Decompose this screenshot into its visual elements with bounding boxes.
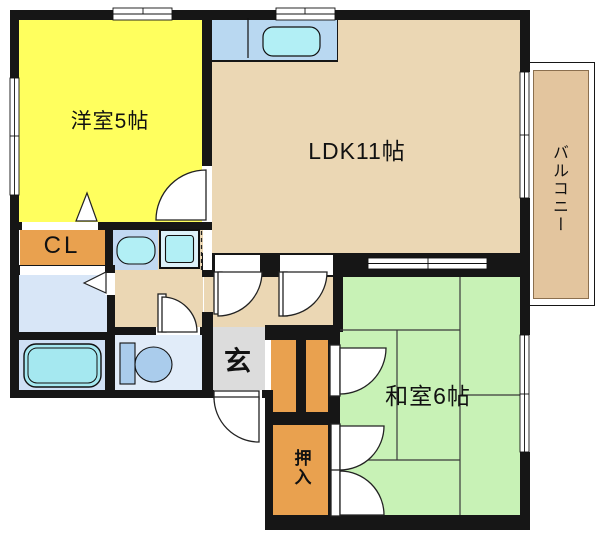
wall-washroom-bath	[10, 332, 107, 340]
opening-hall-left	[215, 255, 260, 275]
shoe-closet-left	[271, 338, 296, 412]
wall-right-top	[520, 10, 530, 72]
room-bathroom	[18, 340, 107, 390]
room-toilet	[115, 335, 203, 390]
opening-hall-right	[280, 255, 333, 275]
opening-cl	[22, 222, 98, 230]
label-balcony: バルコニー	[546, 144, 570, 234]
opening-entry	[214, 390, 262, 398]
wall-top	[10, 10, 530, 20]
label-ldk: LDK11帖	[308, 132, 406, 166]
room-washroom	[18, 275, 107, 332]
label-oshiire: 押入	[289, 449, 314, 487]
kitchen-counter	[212, 18, 338, 62]
wall-japanese-left	[328, 332, 340, 525]
shoe-closet-right	[306, 338, 329, 412]
floor-plan: 洋室5帖 LDK11帖 和室6帖 CL 玄 押入 バルコニー	[0, 0, 600, 535]
washbasin-unit	[111, 228, 158, 270]
label-genkan: 玄	[224, 340, 252, 379]
label-cl: CL	[44, 232, 81, 260]
wall-western-ldk	[202, 10, 212, 168]
opening-washroom	[20, 266, 105, 275]
door-entry-icon	[214, 397, 259, 442]
label-japanese-room: 和室6帖	[385, 377, 471, 411]
wall-bottom	[265, 515, 530, 530]
wall-cl-basin	[105, 222, 113, 275]
opening-washroom-door	[105, 273, 115, 295]
opening-western-door	[202, 166, 212, 222]
opening-basin-pass	[203, 230, 212, 270]
opening-toilet	[156, 327, 200, 335]
label-western-room: 洋室5帖	[71, 105, 150, 135]
window-japanese-icon	[520, 335, 529, 452]
wall-hall-genkan	[202, 312, 213, 392]
wall-entry-vertical	[265, 390, 273, 523]
wall-bath-toilet	[105, 332, 115, 392]
wall-vestibule-right	[333, 264, 343, 332]
wall-left-upper	[10, 10, 19, 78]
wall-shoe-divider	[296, 338, 306, 412]
